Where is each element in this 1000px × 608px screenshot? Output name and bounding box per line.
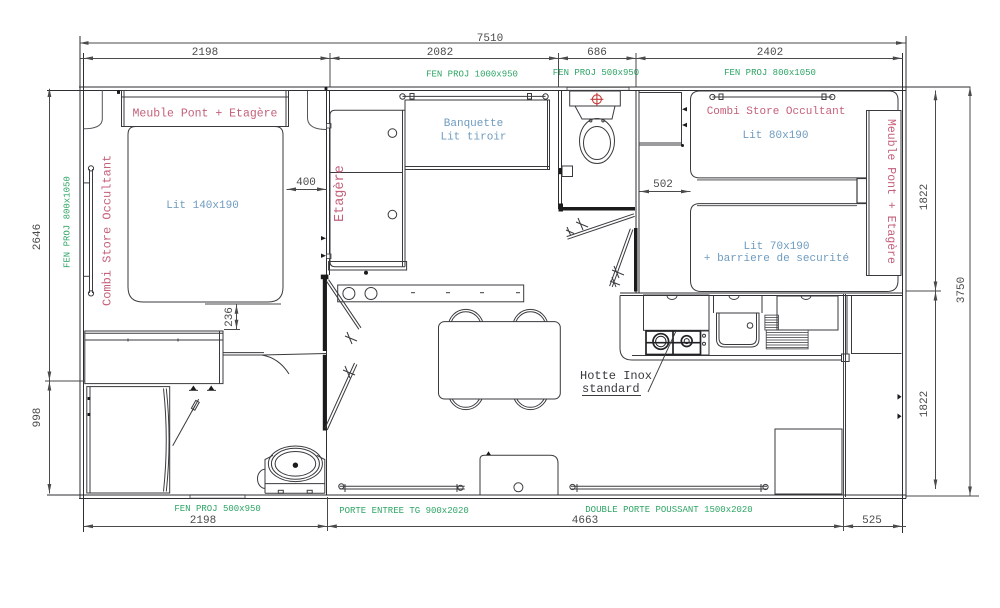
svg-text:FEN PROJ 1000x950: FEN PROJ 1000x950 <box>426 70 518 80</box>
svg-text:400: 400 <box>296 177 316 189</box>
svg-text:Combi Store Occultant: Combi Store Occultant <box>707 106 846 118</box>
svg-text:4663: 4663 <box>572 515 598 527</box>
svg-text:FEN PROJ 500x950: FEN PROJ 500x950 <box>174 504 260 514</box>
svg-text:1822: 1822 <box>919 184 931 210</box>
svg-text:FEN PROJ 800x1050: FEN PROJ 800x1050 <box>724 68 816 78</box>
svg-text:686: 686 <box>587 47 607 59</box>
svg-text:2646: 2646 <box>32 224 44 250</box>
svg-text:Lit tiroir: Lit tiroir <box>440 132 506 144</box>
svg-text:Combi Store Occultant: Combi Store Occultant <box>101 155 115 306</box>
svg-text:998: 998 <box>32 408 44 428</box>
svg-text:236: 236 <box>224 307 236 327</box>
svg-text:Meuble Pont + Etagère: Meuble Pont + Etagère <box>884 119 897 264</box>
svg-text:1822: 1822 <box>919 391 931 417</box>
svg-text:7510: 7510 <box>477 33 503 45</box>
svg-text:FEN PROJ 500x950: FEN PROJ 500x950 <box>553 68 639 78</box>
svg-text:Meuble Pont + Etagère: Meuble Pont + Etagère <box>133 108 278 121</box>
svg-text:FEN PROJ 800x1050: FEN PROJ 800x1050 <box>63 176 73 268</box>
svg-text:DOUBLE PORTE POUSSANT 1500x202: DOUBLE PORTE POUSSANT 1500x2020 <box>585 505 752 515</box>
svg-text:Lit 70x190: Lit 70x190 <box>743 241 809 253</box>
svg-text:2198: 2198 <box>190 515 216 527</box>
svg-text:525: 525 <box>862 515 882 527</box>
svg-text:+ barriere de securité: + barriere de securité <box>704 253 849 265</box>
svg-text:Etagère: Etagère <box>333 165 348 222</box>
svg-text:Lit 140x190: Lit 140x190 <box>166 200 239 212</box>
svg-text:Banquette: Banquette <box>444 118 503 130</box>
svg-text:2198: 2198 <box>192 47 218 59</box>
svg-text:PORTE ENTREE TG 900x2020: PORTE ENTREE TG 900x2020 <box>339 506 469 516</box>
svg-text:2082: 2082 <box>427 47 453 59</box>
svg-text:502: 502 <box>653 179 673 191</box>
svg-text:2402: 2402 <box>757 47 783 59</box>
svg-text:Lit 80x190: Lit 80x190 <box>742 130 808 142</box>
svg-text:3750: 3750 <box>956 277 968 303</box>
svg-text:Hotte Inox: Hotte Inox <box>580 369 652 383</box>
svg-text:standard: standard <box>582 382 640 396</box>
